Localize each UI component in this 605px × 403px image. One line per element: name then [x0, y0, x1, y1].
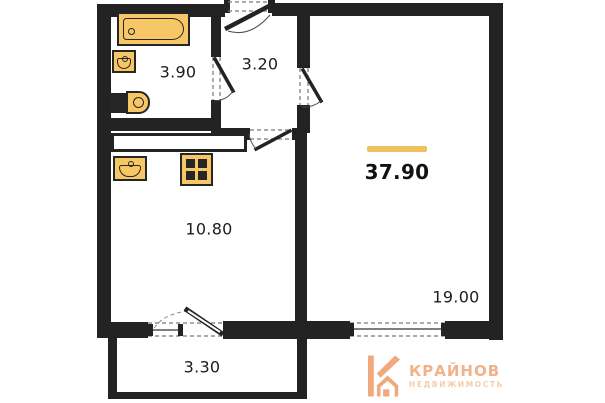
brand-logo: КРАЙНОВ НЕДВИЖИМОСТЬ: [368, 355, 504, 397]
stove-burner: [198, 171, 207, 180]
brand-name: КРАЙНОВ: [409, 363, 504, 380]
stove-burner: [186, 171, 195, 180]
openings-overlay: [0, 0, 605, 403]
stove-icon: [180, 153, 213, 186]
kitchen-sink-icon: [113, 156, 147, 181]
bathtub-icon: [117, 12, 190, 46]
kitchen-door: [249, 130, 292, 149]
living-room-window: [347, 323, 448, 336]
brand-tagline: НЕДВИЖИМОСТЬ: [409, 380, 504, 389]
entrance-door: [224, 0, 275, 33]
living-room-door: [300, 68, 321, 107]
brand-logo-icon: [368, 355, 400, 397]
toilet-tank: [111, 93, 127, 113]
room-label-hallway: 3.20: [242, 55, 279, 74]
stove-burner: [198, 159, 207, 168]
room-label-balcony: 3.30: [184, 358, 221, 377]
stove-burner: [186, 159, 195, 168]
toilet-bowl: [126, 91, 150, 114]
total-area-label: 37.90: [365, 160, 430, 184]
room-label-bathroom: 3.90: [160, 63, 197, 82]
floorplan-canvas: 3.90 3.20 10.80 37.90 19.00 3.30 КРАЙНОВ…: [0, 0, 605, 403]
room-label-kitchen: 10.80: [185, 220, 232, 239]
brand-text: КРАЙНОВ НЕДВИЖИМОСТЬ: [409, 363, 504, 389]
total-area-accent-line: [367, 146, 427, 152]
washbasin-icon: [112, 50, 136, 73]
bathroom-door: [213, 57, 233, 101]
bathtub-drain: [128, 28, 135, 35]
room-label-living-room: 19.00: [432, 288, 479, 307]
